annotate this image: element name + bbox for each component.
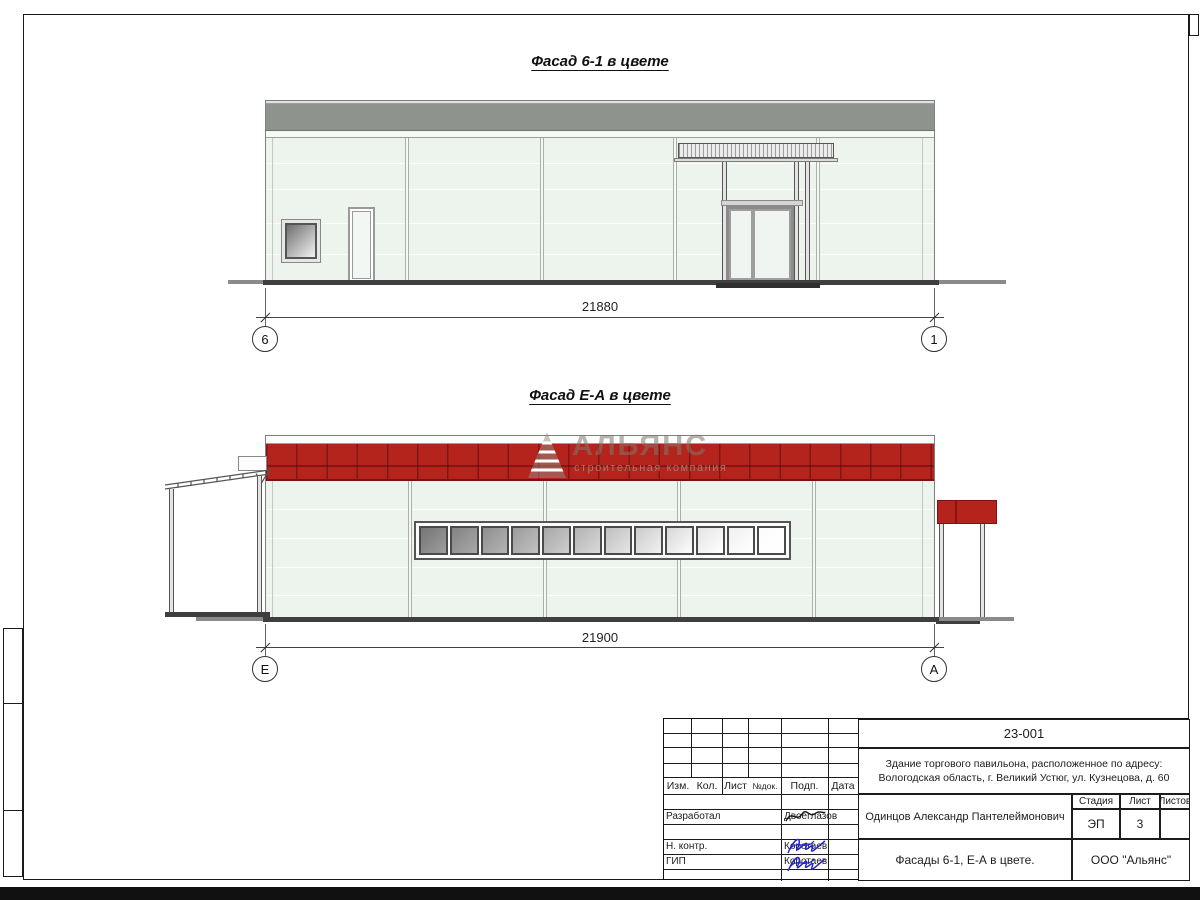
extension-line xyxy=(265,624,266,656)
door-leaf xyxy=(753,209,791,280)
canopy-post xyxy=(939,524,944,620)
entrance-canopy xyxy=(678,143,834,158)
dimension-line xyxy=(256,317,944,318)
panel-joint-horizontal xyxy=(266,163,934,164)
panel-joint-vertical xyxy=(408,481,412,619)
col-header-ndok: №док. xyxy=(749,777,781,794)
door-leaf xyxy=(729,209,753,280)
window-pane xyxy=(419,526,448,555)
signer-role: Н. контр. xyxy=(666,839,722,854)
grid-line xyxy=(828,719,829,881)
signature-black xyxy=(783,807,827,825)
dimension-label: 21900 xyxy=(450,630,750,645)
canopy-post xyxy=(980,524,985,620)
window-pane xyxy=(481,526,510,555)
corner-trim xyxy=(272,481,273,619)
col-header-list: Лист xyxy=(722,777,749,794)
panel-joint-horizontal xyxy=(266,509,934,510)
facade-6-1-title: Фасад 6-1 в цвете xyxy=(430,53,770,70)
panel-joint-vertical xyxy=(812,481,816,619)
col-header-kol: Кол. xyxy=(692,777,722,794)
window-pane xyxy=(604,526,633,555)
cassette-joint-vertical xyxy=(955,501,957,523)
watermark-logo-icon xyxy=(526,430,568,480)
drawing-sheet: Фасад 6-1 в цвете xyxy=(0,0,1200,900)
title-block: Изм. Кол. Лист №док. Подп. Дата Разработ… xyxy=(663,718,1189,880)
dimension-label: 21880 xyxy=(450,299,750,314)
door-threshold xyxy=(716,283,820,288)
signature-blue xyxy=(782,851,828,875)
author-cell: Одинцов Александр Пантелеймонович xyxy=(858,794,1072,839)
axis-bubble-a: А xyxy=(921,656,947,682)
side-canopy-roof xyxy=(158,460,273,494)
project-address-line2: Вологодская область, г. Великий Устюг, у… xyxy=(879,771,1170,785)
signer-role: ГИП xyxy=(666,854,722,869)
company-watermark: АЛЬЯНС строительная компания xyxy=(520,428,780,480)
corner-trim xyxy=(272,138,273,281)
dimension-line xyxy=(256,647,944,648)
band-lower-strip xyxy=(266,132,934,138)
canopy-post xyxy=(794,162,799,283)
axis-bubble-e: Е xyxy=(252,656,278,682)
sheet-value-cell: 3 xyxy=(1120,809,1160,839)
canopy-fascia xyxy=(674,158,838,162)
panel-joint-horizontal xyxy=(266,595,934,596)
panel-joint-horizontal xyxy=(266,567,934,568)
watermark-name: АЛЬЯНС xyxy=(572,430,708,463)
grid-line xyxy=(748,719,749,777)
extension-line xyxy=(934,288,935,326)
canopy-post xyxy=(169,489,174,617)
window-pane xyxy=(573,526,602,555)
canopy-post xyxy=(257,476,262,617)
watermark-subtitle: строительная компания xyxy=(574,462,727,474)
window-pane xyxy=(696,526,725,555)
window-pane xyxy=(542,526,571,555)
window-pane xyxy=(450,526,479,555)
doc-number-cell: 23-001 xyxy=(858,719,1190,748)
panel-joint-vertical xyxy=(405,138,409,281)
legend: - Стены: сэндвич-панели, доборные элемен… xyxy=(0,740,660,860)
ribbon-window xyxy=(414,521,791,560)
window-pane xyxy=(757,526,786,555)
facade-e-a-title: Фасад Е-А в цвете xyxy=(430,387,770,404)
double-door xyxy=(726,206,794,283)
sheet-header-cell: Лист xyxy=(1120,794,1160,809)
sheets-value-cell xyxy=(1160,809,1190,839)
canopy-post xyxy=(805,162,810,283)
ground-line-dark xyxy=(263,617,939,622)
corner-trim xyxy=(922,481,923,619)
window-pane xyxy=(727,526,756,555)
col-header-data: Дата xyxy=(828,777,858,794)
grid-line xyxy=(691,719,692,777)
panel-joint-vertical xyxy=(540,138,544,281)
extension-line xyxy=(265,288,266,326)
facade-6-1-drawing xyxy=(265,100,935,282)
project-address-cell: Здание торгового павильона, расположенно… xyxy=(858,748,1190,794)
parapet-band-gray xyxy=(266,104,934,131)
window-pane xyxy=(511,526,540,555)
panel-joint-horizontal xyxy=(266,189,934,190)
drawing-title-cell: Фасады 6-1, Е-А в цвете. xyxy=(858,839,1072,881)
window xyxy=(281,219,321,263)
stage-header-cell: Стадия xyxy=(1072,794,1120,809)
extension-line xyxy=(934,624,935,656)
door xyxy=(348,207,375,283)
sheet-bottom-bar xyxy=(0,887,1200,900)
window-pane xyxy=(634,526,663,555)
entrance-canopy-red xyxy=(937,500,997,524)
axis-bubble-6: 6 xyxy=(252,326,278,352)
corner-trim xyxy=(922,138,923,281)
axis-bubble-1: 1 xyxy=(921,326,947,352)
col-header-izm: Изм. xyxy=(664,777,692,794)
ground-line-dark xyxy=(263,280,939,285)
project-address-line1: Здание торгового павильона, расположенно… xyxy=(886,757,1163,771)
corner-stamp-box xyxy=(1189,14,1199,36)
company-cell: ООО "Альянс" xyxy=(1072,839,1190,881)
stage-value-cell: ЭП xyxy=(1072,809,1120,839)
col-header-podp: Подп. xyxy=(781,777,828,794)
filing-box-divider xyxy=(4,703,22,704)
signer-role: Разработал xyxy=(666,809,722,824)
sheets-header-cell: Листов xyxy=(1160,794,1190,809)
window-glass xyxy=(285,223,317,259)
window-pane xyxy=(665,526,694,555)
